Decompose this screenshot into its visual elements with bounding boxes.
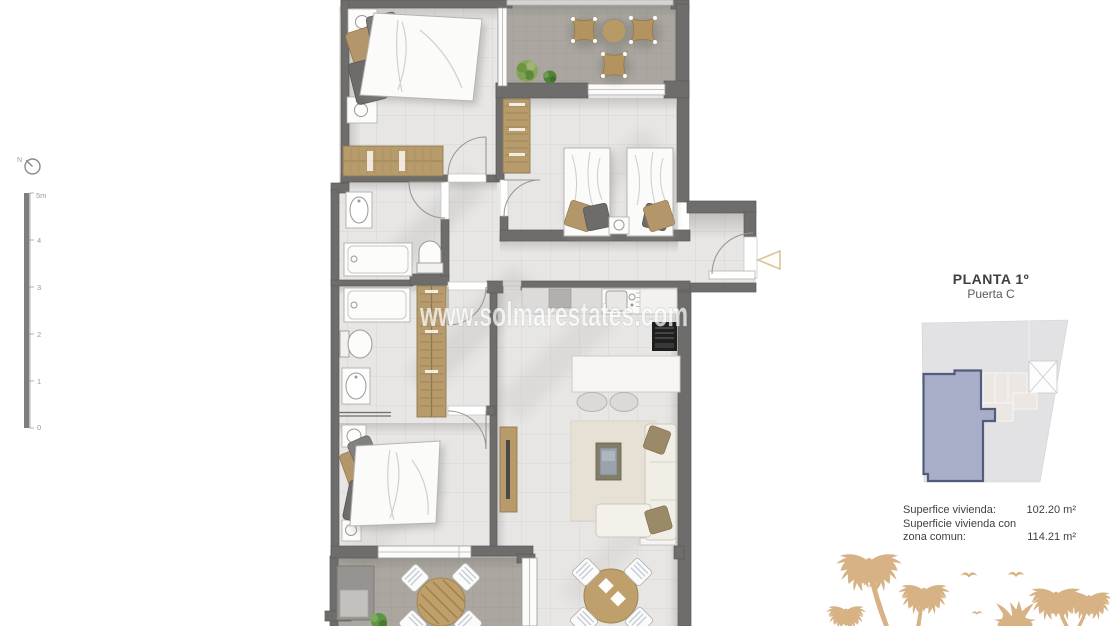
svg-text:Superficie vivienda con: Superficie vivienda con — [903, 518, 1016, 530]
svg-text:0: 0 — [37, 423, 41, 432]
svg-text:5m: 5m — [36, 191, 46, 200]
svg-text:zona comun:: zona comun: — [903, 531, 966, 543]
svg-text:3: 3 — [37, 283, 41, 292]
svg-text:www.solmarestates.com: www.solmarestates.com — [419, 296, 688, 334]
svg-text:1: 1 — [37, 377, 41, 386]
svg-text:114.21 m²: 114.21 m² — [1027, 531, 1076, 543]
svg-text:2: 2 — [37, 330, 41, 339]
svg-text:4: 4 — [37, 236, 41, 245]
svg-text:Superfice vivienda:: Superfice vivienda: — [903, 504, 996, 516]
svg-text:102.20 m²: 102.20 m² — [1026, 504, 1076, 516]
svg-text:PLANTA 1º: PLANTA 1º — [953, 271, 1030, 287]
svg-text:N: N — [17, 157, 22, 164]
svg-text:Puerta C: Puerta C — [967, 287, 1015, 301]
